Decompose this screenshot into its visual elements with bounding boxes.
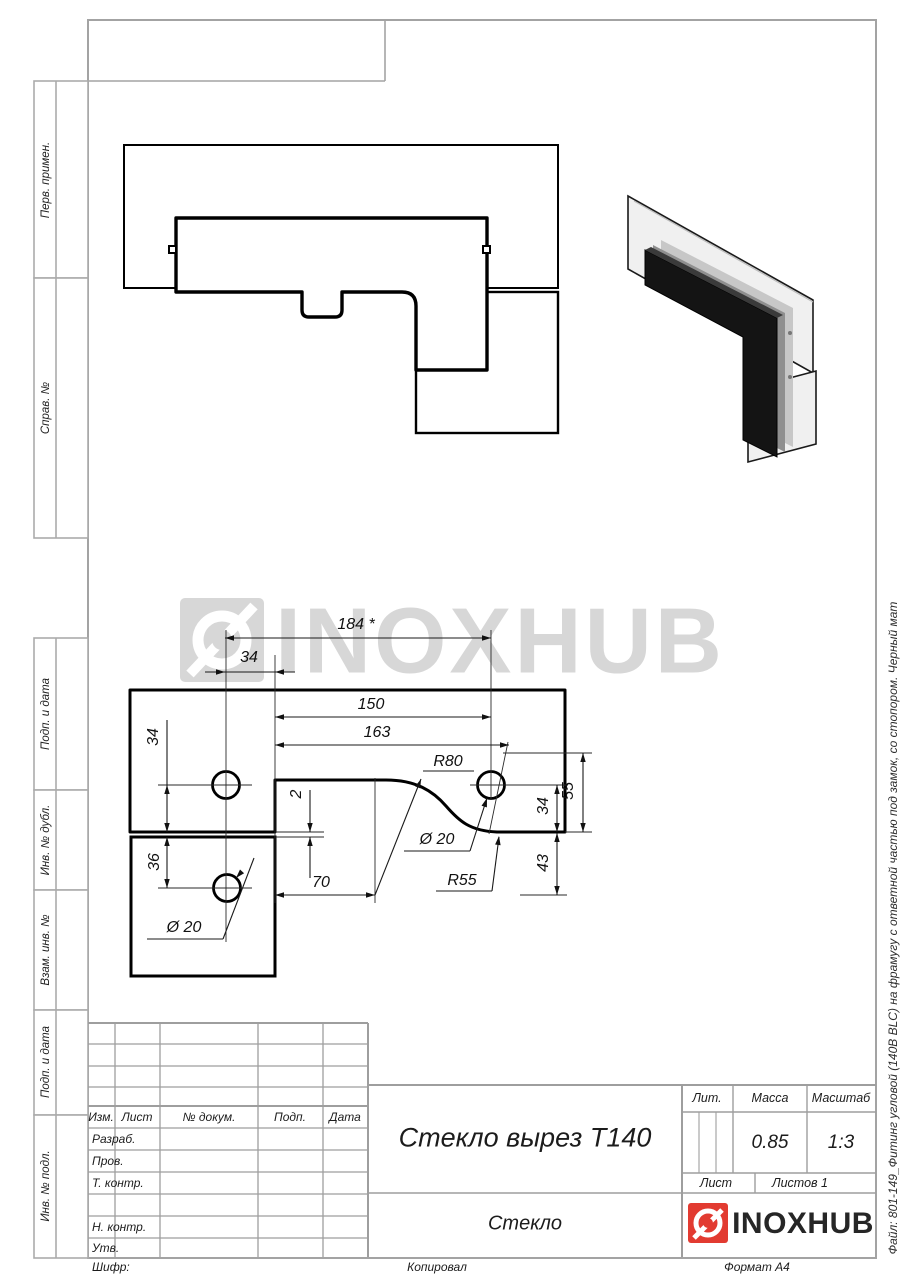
mass-value: 0.85 [752,1132,789,1154]
row-utv: Утв. [92,1241,119,1255]
inoxhub-logo-text: INOXHUB [732,1207,874,1241]
dim-70: 70 [312,874,330,892]
sheets-label: Листов 1 [772,1176,828,1190]
fitting-outline-top-view [176,218,487,370]
row-prov: Пров. [92,1154,124,1168]
sheet-label: Лист [700,1176,732,1190]
top-view [124,145,558,433]
margin-label-inv-podl: Инв. № подл. [40,1150,52,1221]
col-podp: Подп. [274,1110,306,1124]
dim-184: 184 * [337,616,374,634]
col-dokum: № докум. [183,1110,236,1124]
part-name: Стекло [488,1213,562,1236]
margin-label-sprav-no: Справ. № [40,382,52,434]
format-note: Формат А4 [724,1260,790,1274]
col-list: Лист [122,1110,153,1124]
dim-36: 36 [146,853,164,871]
dim-34-right: 34 [535,797,553,815]
file-note: Файл: 801-149_Фитинг угловой (140В BLC) … [886,602,900,1255]
dim-r55: R55 [447,872,476,890]
drawing-sheet: INOXHUB [0,0,905,1280]
col-data: Дата [329,1110,361,1124]
col-izm: Изм. [88,1110,114,1124]
scale-value: 1:3 [828,1132,854,1154]
dim-2: 2 [288,790,306,799]
dim-34-top: 34 [240,649,258,667]
dim-34-left: 34 [145,728,163,746]
margin-label-vzam-inv: Взам. инв. № [40,914,52,985]
row-razrab: Разраб. [92,1132,135,1146]
dim-dia20-bottom: Ø 20 [167,919,202,937]
copied-note: Копировал [407,1260,467,1274]
lit-label: Лит. [692,1091,721,1105]
watermark-logo-icon [180,598,264,682]
margin-label-inv-dubl: Инв. № дубл. [40,805,52,876]
dim-r80: R80 [433,753,462,771]
dim-43: 43 [535,854,553,872]
dim-55: 55 [560,782,578,800]
dim-150: 150 [358,696,385,714]
doc-title: Стекло вырез Т140 [399,1123,652,1154]
dim-163: 163 [364,724,391,742]
margin-label-podp-data-1: Подп. и дата [40,678,52,750]
upper-glass-outline [130,690,565,832]
mass-label: Масса [752,1091,789,1105]
drawing-canvas [0,0,905,1280]
inoxhub-logo-icon [688,1203,728,1243]
row-tkontr: Т. контр. [92,1176,144,1190]
row-nkontr: Н. контр. [92,1220,146,1234]
margin-label-podp-data-2: Подп. и дата [40,1026,52,1098]
dim-dia20-top: Ø 20 [420,831,455,849]
cipher-label: Шифр: [92,1260,130,1274]
scale-label: Масштаб [812,1091,870,1105]
iso-view [628,196,816,462]
margin-label-perv-primen: Перв. примен. [40,142,52,218]
